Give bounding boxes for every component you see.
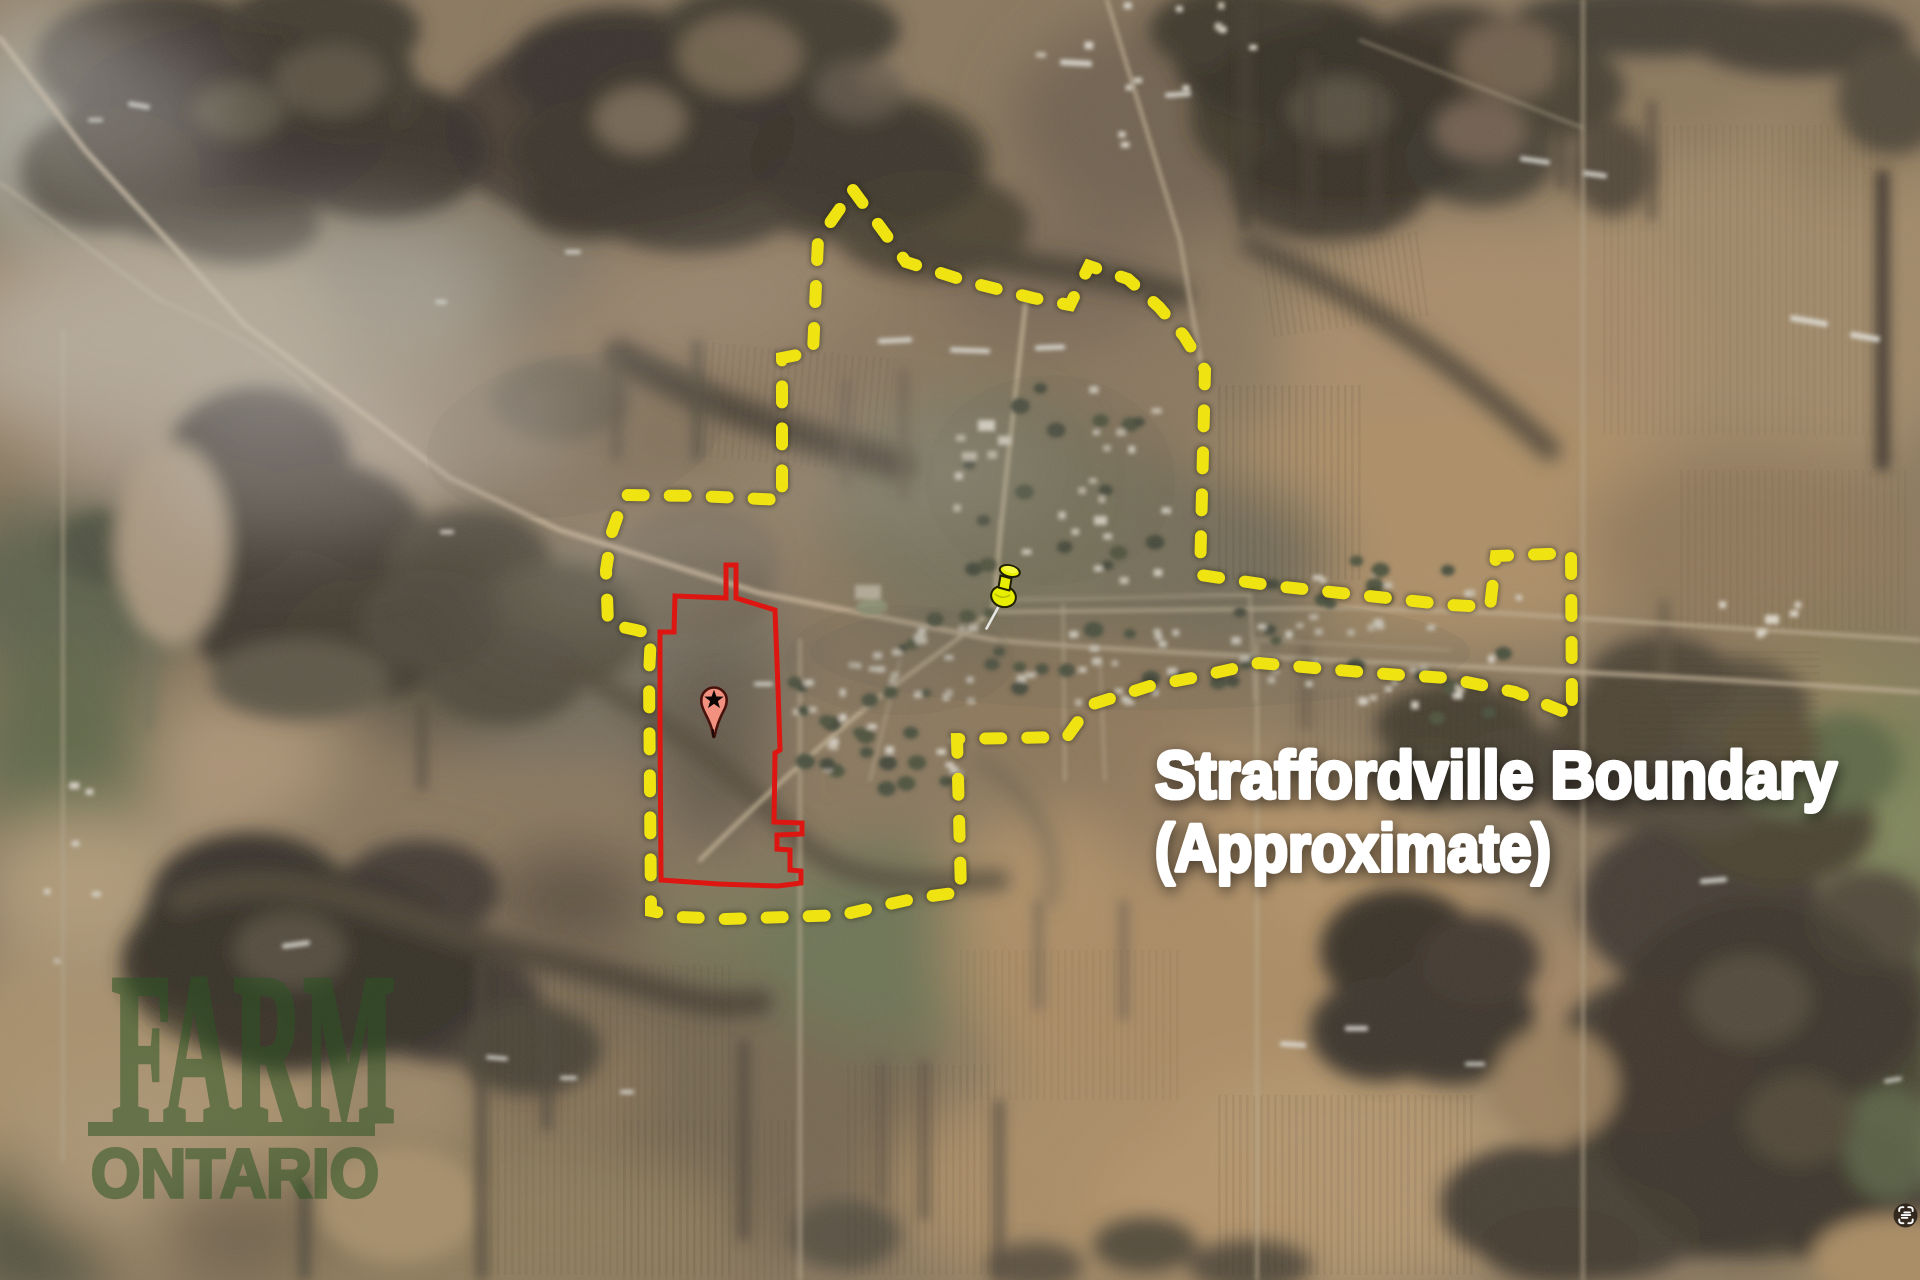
svg-text:ONTARIO: ONTARIO (91, 1135, 379, 1212)
svg-text:Straffordville Boundary: Straffordville Boundary (1155, 738, 1837, 813)
svg-text:(Approximate): (Approximate) (1155, 811, 1551, 886)
